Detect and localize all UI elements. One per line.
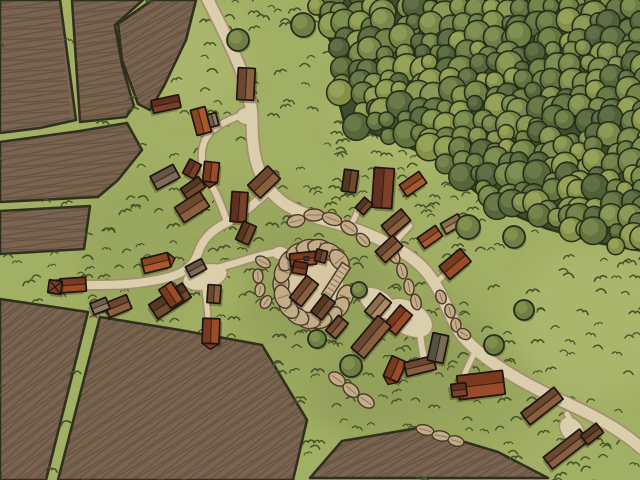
forest-tree-highlight [572, 144, 583, 155]
village-map-image [0, 0, 640, 480]
forest-tree-highlight [487, 73, 498, 84]
map-svg [0, 0, 640, 480]
forest-tree-highlight [585, 150, 600, 165]
forest-tree-highlight [526, 162, 543, 179]
forest-tree-highlight [599, 123, 614, 138]
forest-tree-highlight [439, 46, 450, 57]
forest-tree [579, 217, 607, 245]
forest-tree-highlight [382, 130, 392, 140]
forest-tree-highlight [538, 13, 552, 27]
forest-tree-highlight [599, 44, 612, 57]
forest-tree-highlight [333, 58, 348, 73]
forest-tree-highlight [569, 181, 582, 194]
forest-tree-highlight [368, 114, 379, 125]
forest-tree-highlight [455, 152, 467, 164]
forest-tree-highlight [555, 137, 567, 149]
forest-tree [554, 109, 574, 129]
forest-tree-highlight [331, 39, 343, 51]
tree-highlight [310, 332, 320, 342]
forest-tree-highlight [508, 163, 524, 179]
forest-tree-highlight [542, 70, 555, 83]
forest-tree-highlight [418, 135, 435, 152]
forest-tree-highlight [600, 107, 615, 122]
forest-tree-highlight [423, 55, 432, 64]
tree-highlight [486, 337, 498, 349]
forest-tree-highlight [599, 12, 613, 26]
forest-tree-highlight [472, 55, 484, 67]
forest-tree-highlight [547, 43, 556, 52]
forest-tree-highlight [587, 26, 600, 39]
forest-tree-highlight [333, 11, 349, 27]
forest-tree-highlight [577, 41, 587, 51]
forest-tree-highlight [487, 95, 503, 111]
forest-tree-highlight [565, 43, 576, 54]
forest-tree-highlight [360, 38, 374, 52]
forest-tree-highlight [541, 128, 554, 141]
forest-tree-highlight [467, 83, 481, 97]
building [237, 68, 258, 104]
tree-highlight [516, 302, 528, 314]
forest-tree [422, 54, 437, 69]
forest-tree-highlight [611, 225, 620, 234]
building [207, 285, 224, 307]
forest-tree-highlight [584, 176, 600, 192]
forest-tree-highlight [562, 219, 577, 234]
plowed-field [0, 206, 97, 254]
forest-tree-highlight [515, 71, 526, 82]
forest-tree [575, 40, 591, 56]
forest-tree-highlight [472, 42, 482, 52]
forest-tree-highlight [437, 156, 449, 168]
forest-tree-highlight [408, 15, 417, 24]
forest-tree [327, 79, 353, 105]
forest-tree-highlight [602, 66, 617, 81]
building [47, 280, 65, 298]
forest-tree-highlight [460, 69, 471, 80]
forest-tree-highlight [467, 22, 483, 38]
forest-tree-highlight [416, 46, 425, 55]
forest-tree-highlight [470, 128, 481, 139]
forest-tree-highlight [526, 83, 536, 93]
forest-tree-highlight [559, 9, 574, 24]
forest-tree-highlight [529, 205, 543, 219]
forest-tree-highlight [556, 111, 568, 123]
forest-tree [467, 96, 483, 112]
forest-tree-highlight [545, 0, 554, 9]
forest-tree-highlight [345, 115, 361, 131]
forest-tree-highlight [587, 82, 599, 94]
forest-tree-highlight [512, 0, 524, 12]
forest-tree-highlight [438, 102, 448, 112]
forest-tree [379, 112, 394, 127]
forest-tree-highlight [389, 93, 405, 109]
forest-tree-highlight [609, 239, 619, 249]
forest-tree [607, 237, 624, 254]
road-clearing-fill [237, 108, 257, 124]
forest-tree-highlight [601, 206, 615, 220]
rock-lump [304, 209, 324, 221]
tree-highlight [342, 357, 355, 370]
building [371, 167, 396, 211]
tree-highlight [353, 283, 362, 292]
building [230, 191, 251, 225]
forest-tree-highlight [468, 97, 477, 106]
tree-highlight [229, 31, 242, 44]
forest-tree-highlight [484, 116, 494, 126]
forest-tree-highlight [582, 219, 599, 236]
forest-tree-highlight [486, 27, 500, 41]
forest-tree [343, 113, 370, 140]
forest-tree [527, 204, 550, 227]
forest-tree-highlight [377, 81, 390, 94]
forest-tree-highlight [455, 15, 468, 28]
forest-tree-highlight [603, 155, 617, 169]
forest-tree-highlight [478, 165, 493, 180]
forest-tree-highlight [499, 126, 509, 136]
forest-tree-highlight [329, 81, 345, 97]
forest-tree-highlight [603, 28, 618, 43]
forest-tree-highlight [456, 112, 470, 126]
building [341, 169, 361, 196]
forest-tree-highlight [544, 180, 557, 193]
forest-tree-highlight [391, 25, 407, 41]
forest-tree-highlight [586, 138, 597, 149]
forest-tree [329, 38, 350, 59]
tree-highlight [505, 228, 518, 241]
forest-tree-highlight [570, 96, 584, 110]
building [202, 318, 223, 350]
rock-lump [252, 269, 263, 284]
tree-highlight [458, 217, 472, 231]
door-mark [304, 256, 309, 261]
forest-tree-highlight [396, 122, 413, 139]
forest-tree-highlight [373, 10, 388, 25]
forest-tree-highlight [560, 55, 573, 68]
forest-tree-highlight [526, 43, 538, 55]
tree-highlight [293, 15, 307, 29]
forest-tree-highlight [421, 13, 436, 28]
forest-tree-highlight [451, 165, 468, 182]
forest-tree-highlight [508, 23, 523, 38]
forest-tree-highlight [380, 113, 389, 122]
